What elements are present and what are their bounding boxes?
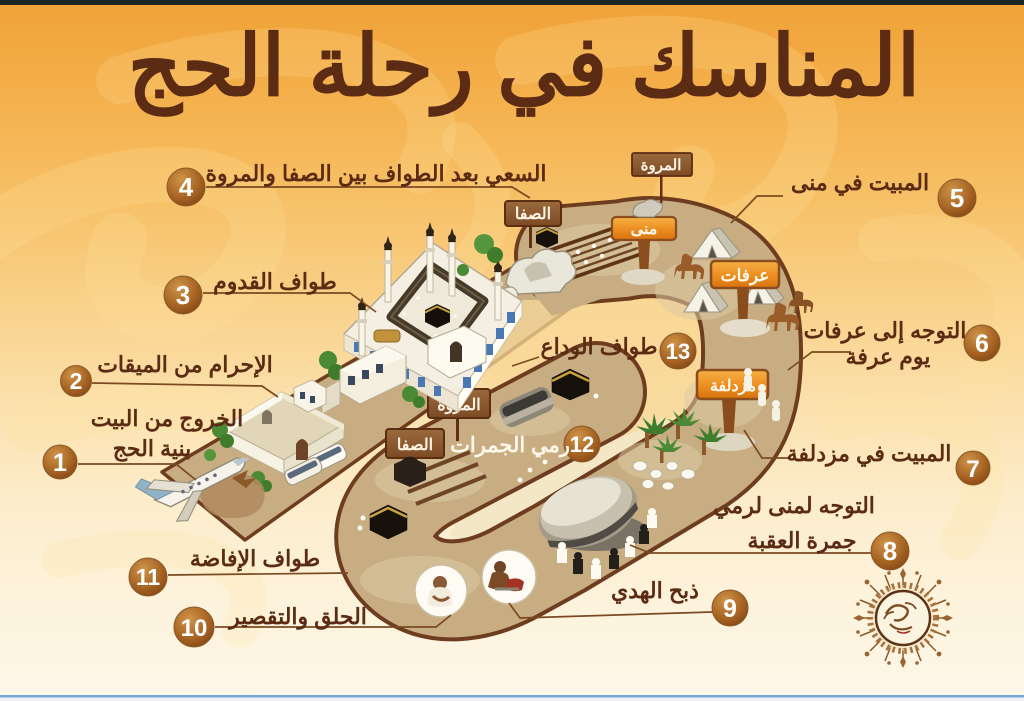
svg-text:1: 1	[53, 449, 67, 477]
svg-text:2: 2	[70, 368, 83, 394]
svg-text:13: 13	[666, 339, 690, 364]
svg-text:السعي بعد الطواف بين الصفا وال: السعي بعد الطواف بين الصفا والمروة	[205, 161, 546, 187]
svg-text:طواف القدوم: طواف القدوم	[213, 269, 337, 295]
svg-text:12: 12	[570, 432, 594, 457]
svg-text:بنية الحج: بنية الحج	[113, 436, 192, 462]
svg-text:8: 8	[883, 536, 897, 566]
svg-text:ذبح الهدي: ذبح الهدي	[611, 578, 699, 604]
svg-text:4: 4	[179, 172, 194, 202]
svg-text:رمي الجمرات: رمي الجمرات	[450, 434, 570, 458]
svg-text:يوم عرفة: يوم عرفة	[846, 344, 931, 370]
svg-text:6: 6	[975, 330, 989, 358]
svg-text:المروة: المروة	[641, 157, 682, 174]
svg-text:الخروج من البيت: الخروج من البيت	[91, 406, 243, 432]
svg-text:المبيت في مزدلفة: المبيت في مزدلفة	[787, 441, 952, 467]
svg-text:عرفات: عرفات	[721, 266, 770, 286]
svg-text:10: 10	[181, 615, 208, 642]
svg-text:طواف الإفاضة: طواف الإفاضة	[190, 546, 320, 573]
svg-text:الصفا: الصفا	[515, 206, 551, 223]
svg-text:المبيت في منى: المبيت في منى	[791, 170, 929, 196]
svg-text:11: 11	[136, 564, 161, 590]
svg-text:جمرة العقبة: جمرة العقبة	[747, 528, 856, 554]
svg-text:منى: منى	[631, 221, 658, 238]
svg-text:3: 3	[176, 280, 190, 310]
svg-text:9: 9	[723, 595, 737, 623]
svg-text:التوجه إلى عرفات: التوجه إلى عرفات	[804, 318, 967, 345]
svg-text:الإحرام من الميقات: الإحرام من الميقات	[97, 352, 273, 379]
svg-text:التوجه لمنى لرمي: التوجه لمنى لرمي	[713, 493, 875, 519]
svg-text:المناسك في رحلة الحج: المناسك في رحلة الحج	[128, 19, 921, 118]
svg-text:الصفا: الصفا	[397, 437, 433, 454]
svg-text:طواف الوداع: طواف الوداع	[540, 334, 657, 360]
svg-text:الحلق والتقصير: الحلق والتقصير	[227, 604, 367, 630]
svg-text:7: 7	[966, 456, 979, 483]
svg-text:5: 5	[950, 183, 964, 213]
